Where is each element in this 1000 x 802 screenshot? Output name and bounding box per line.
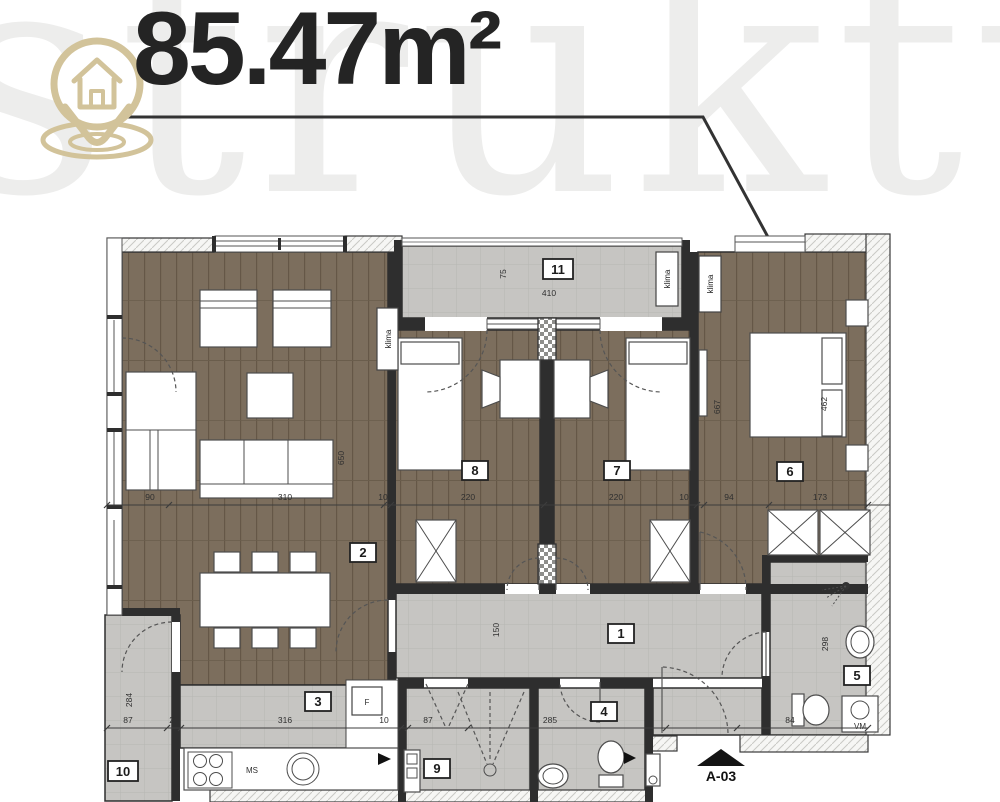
dim-label: 298 [820,637,830,651]
toilet [598,741,624,773]
dim-label: 10 [379,715,389,725]
desk [500,360,540,418]
klima-label: klima [663,269,672,288]
room-label-6: 6 [786,464,793,479]
dim-label: 220 [609,492,623,502]
fridge-label: F [365,698,370,707]
pillow [629,342,687,364]
desk [554,360,590,418]
pillow [822,390,842,436]
room-label-10: 10 [116,764,130,779]
chair [252,552,278,572]
room-label-1: 1 [617,626,624,641]
desk-chair [482,370,500,408]
dim-label: 316 [278,715,292,725]
dim-label: 10 [378,492,388,502]
dim-label: 462 [819,397,829,411]
cabinet [646,754,660,786]
dining-table [200,573,330,627]
dim-label: 667 [712,400,722,414]
room-label-11: 11 [551,262,565,277]
north-arrow-icon [697,749,745,766]
armchair [273,290,331,347]
dim-label: 94 [724,492,734,502]
dim-label: 20 [169,715,179,725]
dim-label: 90 [145,492,155,502]
balcony-11-floor [402,246,682,318]
armchair [200,290,257,347]
pillow [401,342,459,364]
section-marker-label: A-03 [706,768,737,784]
hallway-1-floor [396,590,762,678]
dim-label: 284 [124,693,134,707]
dim-label: 285 [543,715,557,725]
bedroom-6-window [735,236,805,252]
sliding-door-leaf [699,350,707,416]
dim-label: 220 [461,492,475,502]
chair [290,628,316,648]
floorplan-page: struktura 85.47m² [0,0,1000,802]
dim-label: 84 [785,715,795,725]
room-label-5: 5 [853,668,860,683]
toilet-tank [599,775,623,787]
washer-label: VM [854,722,866,731]
boiler [404,750,420,792]
chair [214,628,240,648]
dim-label: 87 [423,715,433,725]
tv-cabinet [126,372,196,490]
dim-label: 150 [491,623,501,637]
chair [290,552,316,572]
area-title: 85.47m² [133,0,499,109]
coffee-table [247,373,293,418]
pillow [822,338,842,384]
bathroom-9-floor [406,688,530,800]
dim-label: 650 [336,451,346,465]
chair [214,552,240,572]
room-label-7: 7 [613,463,620,478]
room-label-9: 9 [433,761,440,776]
dim-label: 410 [542,288,556,298]
nightstand [846,445,868,471]
section-marker: A-03 [697,749,745,784]
chair [252,628,278,648]
dim-label: 173 [813,492,827,502]
room-label-2: 2 [359,545,366,560]
sofa [200,440,333,498]
dim-label: 87 [123,715,133,725]
klima-label: klima [384,329,393,348]
dim-label: 75 [498,269,508,279]
nightstand [846,300,868,326]
room-label-3: 3 [314,694,321,709]
room-label-8: 8 [471,463,478,478]
desk-chair [590,370,608,408]
dim-label: 10 [679,492,689,502]
dim-label: 310 [278,492,292,502]
entry-fixtures [646,754,660,786]
klima-label: klima [706,274,715,293]
room-label-4: 4 [600,704,608,719]
stove-label: MS [246,766,258,775]
toilet [803,695,829,725]
